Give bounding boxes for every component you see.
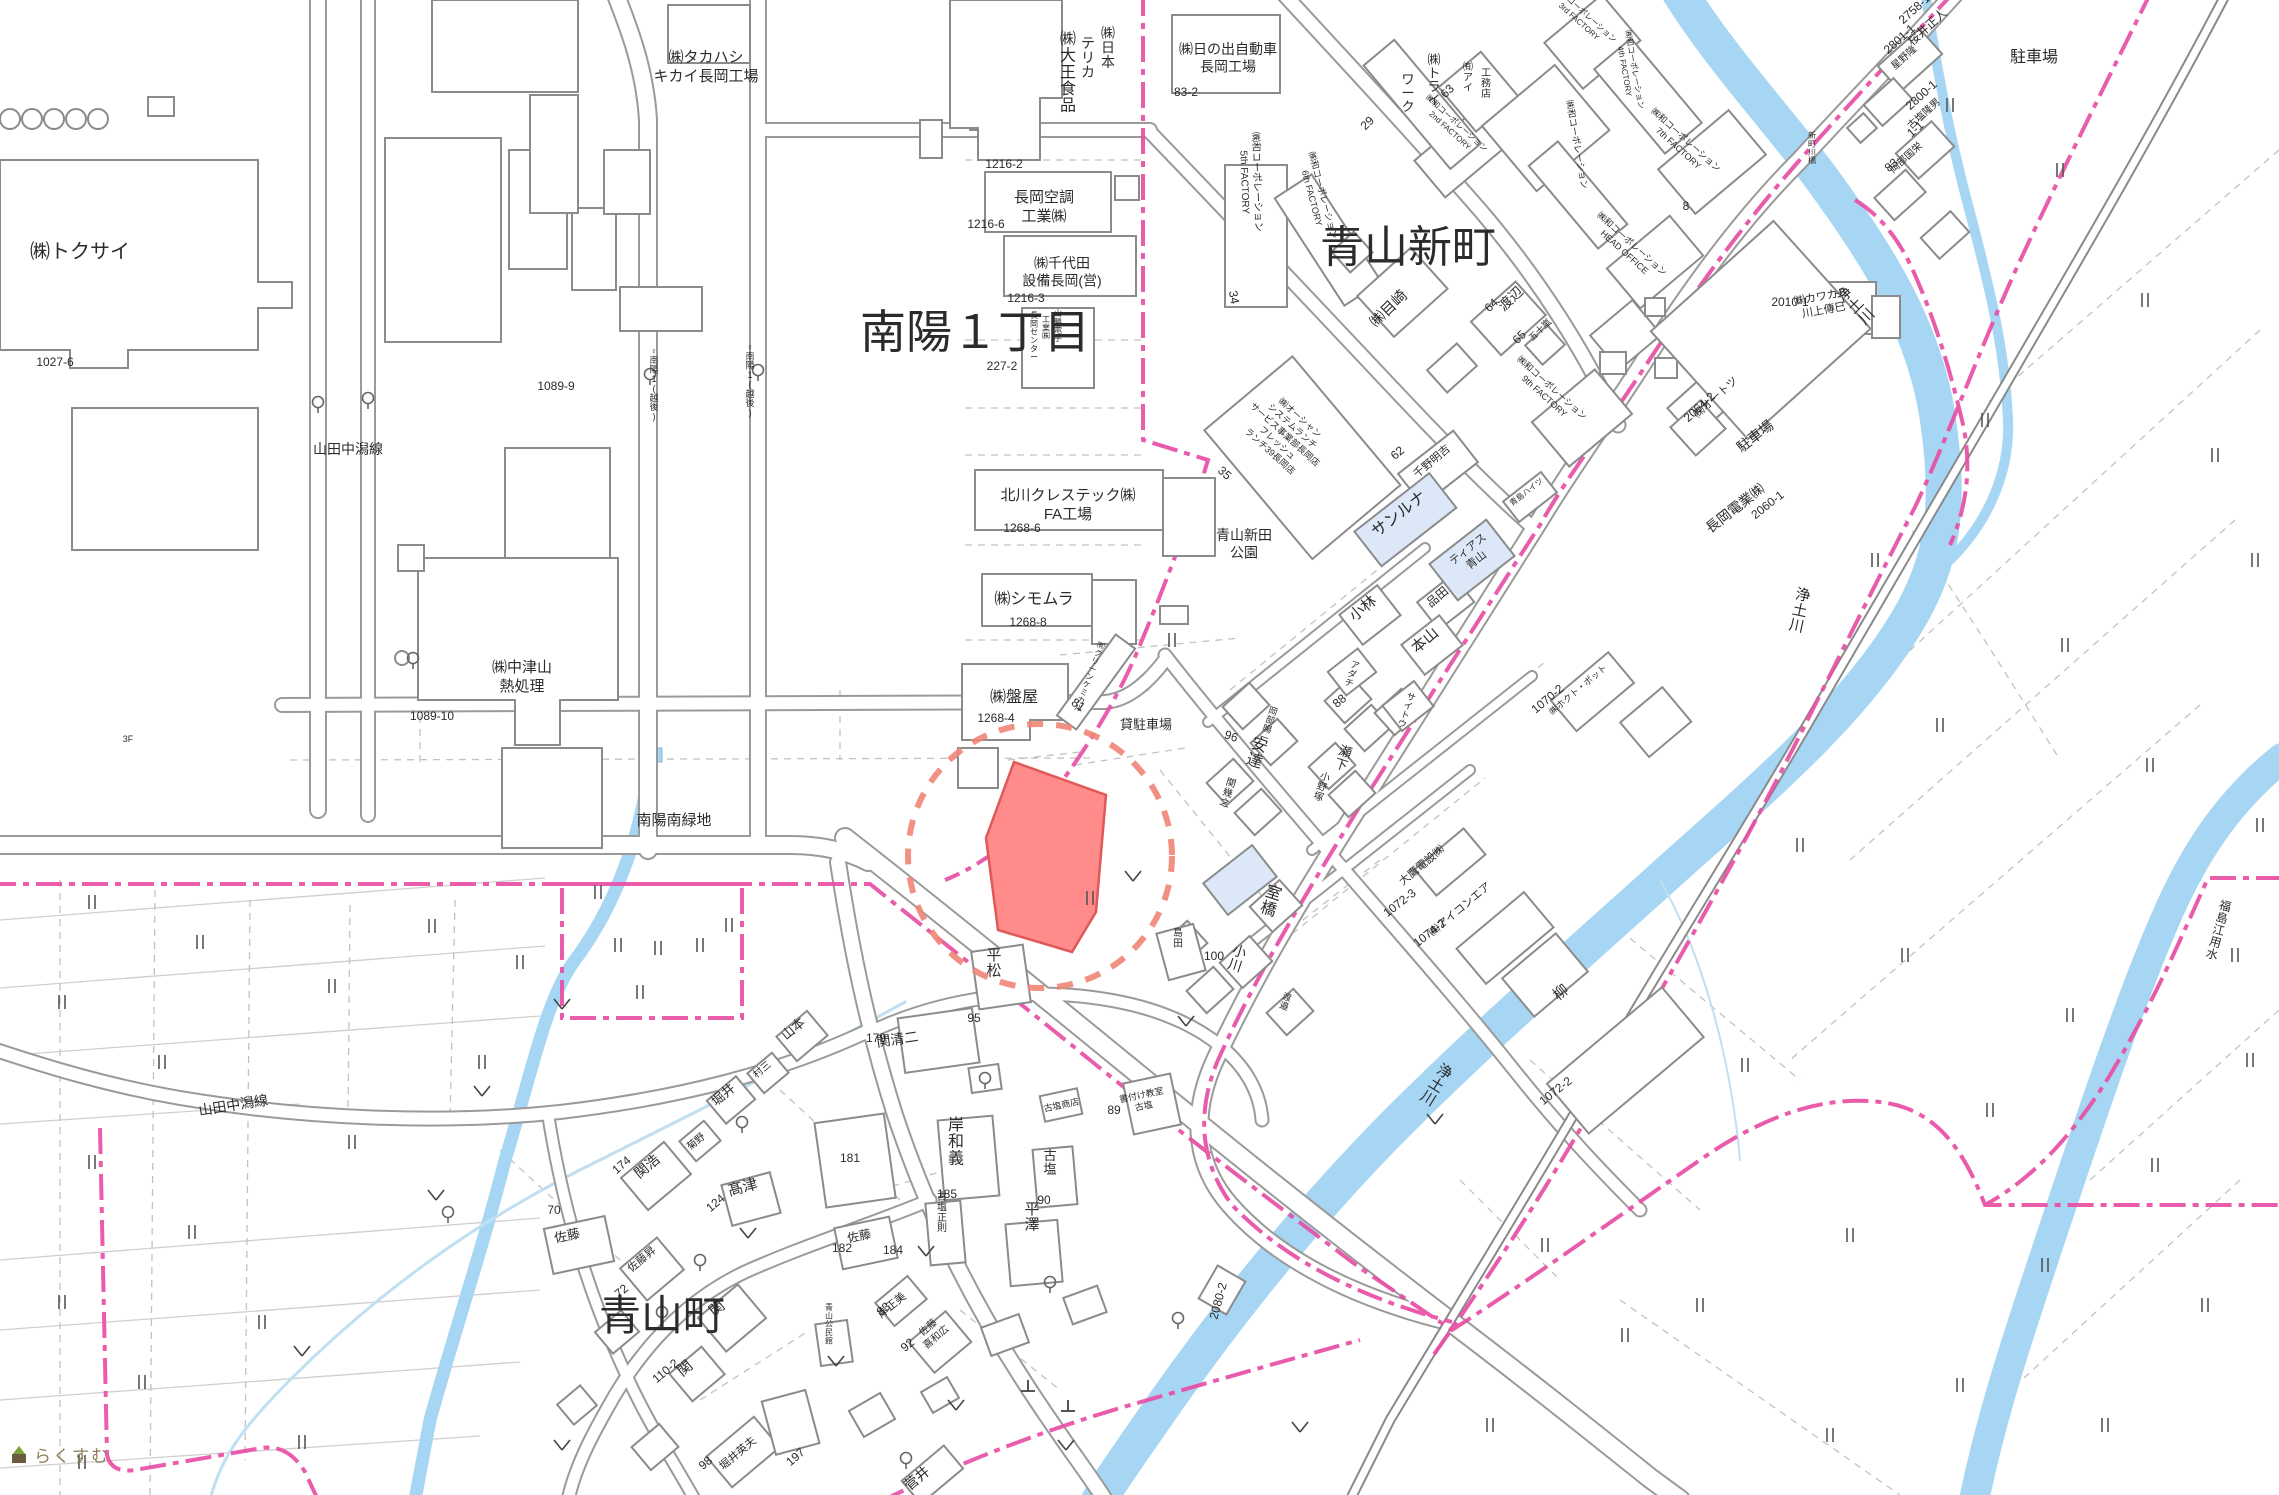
paddy-field-icon [299,1435,305,1449]
map-label: 3F [123,734,134,744]
field-check-icon [554,1440,570,1450]
parcel-number-label: 62 [1388,443,1407,463]
watermark: らくすむ [10,1442,110,1467]
map-label: 新町川橋 [1808,130,1816,165]
map-label: ㈱タカハシキカイ長岡工場 [653,49,758,85]
paddy-field-icon [637,985,643,999]
bus-stop-icon [901,1453,912,1470]
map-label: 工業㈱ [1042,315,1050,341]
map-label: ㈲アイ [1463,61,1473,94]
paddy-field-icon [259,1315,265,1329]
canal-fukushimae [1972,758,2279,1495]
map-label: 山田中潟線 [313,441,383,457]
paddy-field-icon [349,1135,355,1149]
paddy-field-icon [1742,1058,1748,1072]
field-strip-lines [0,878,545,1468]
paddy-field-icon [2247,1053,2253,1067]
district-label: 青山町 [599,1292,725,1339]
paddy-field-icon [697,938,703,952]
map-label: ㈱日本 [1101,25,1115,70]
parcel-number-label: 100 [1204,949,1224,963]
parcel-number-label: 95 [967,1011,981,1025]
map-label: 島田 [1173,926,1183,949]
paddy-field-icon [2062,638,2068,652]
paddy-field-icon [89,1155,95,1169]
map-label: ㈱盤屋 [990,688,1038,706]
bus-stop-icon [737,1117,748,1134]
paddy-field-icon [159,1055,165,1069]
survey-post-icon [1061,1400,1075,1411]
field-check-icon [1292,1422,1308,1432]
paddy-field-icon [2212,448,2218,462]
paddy-field-icon [2142,293,2148,307]
watermark-text: らくすむ [34,1442,110,1467]
building-tokusai[interactable] [0,160,292,368]
parcel-number-label: 1216-6 [967,217,1005,231]
parcel-number-label: 8 [1683,199,1690,213]
field-check-icon [474,1086,490,1096]
map-label: ㈱シモムラ [994,590,1073,608]
map-label: 山勝電子 [1054,308,1062,343]
paddy-field-icon [2147,758,2153,772]
building-takahashi[interactable] [432,0,578,92]
paddy-field-icon [726,918,732,932]
parcel-number-label: 1074-2 [1411,916,1449,950]
paddy-field-icon [1827,1428,1833,1442]
paddy-field-icon [2152,1158,2158,1172]
rakusumu-logo-icon [10,1446,28,1464]
parcel-number-label: 179 [866,1031,886,1045]
map-label: ㈱大王食品 [1060,30,1076,115]
field-check-icon [428,1190,444,1200]
bus-stop-icon [443,1207,454,1224]
paddy-field-icon [1987,1103,1993,1117]
paddy-field-icon [89,895,95,909]
paddy-field-icon [1872,553,1878,567]
parcel-number-label: 181 [840,1151,860,1165]
highlighted-red-parcel[interactable] [986,762,1106,952]
paddy-field-icon [2067,1008,2073,1022]
paddy-field-icon [479,1055,485,1069]
bus-stop-icon [1173,1313,1184,1330]
parcel-number-label: 89 [1107,1103,1121,1117]
map-label: 駐車場 [2010,48,2058,66]
parcel-number-label: 1027-6 [36,355,74,369]
paddy-field-icon [429,919,435,933]
parcel-number-label: 34 [1226,290,1242,306]
field-check-icon [740,1228,756,1238]
map-label: 南陽南緑地 [636,812,711,829]
map-label: テリカ [1081,35,1095,80]
paddy-field-icon [2232,948,2238,962]
field-check-icon [1125,871,1141,881]
parcel-number-label: 185 [937,1187,957,1201]
paddy-field-icon [197,935,203,949]
map-label: ㈱中津山熱処理 [492,659,552,695]
map-label: ワーク [1401,72,1414,114]
parcel-number-label: 70 [547,1203,561,1217]
paddy-field-icon [1937,718,1943,732]
map-label: 青山新田公園 [1216,527,1272,561]
parcel-number-label: 83-2 [1174,85,1198,99]
paddy-field-icon [1697,1298,1703,1312]
parcel-number-label: 1268-8 [1009,615,1047,629]
paddy-field-icon [329,979,335,993]
bus-stop-icon [695,1255,706,1272]
paddy-field-icon [2252,553,2258,567]
paddy-field-icon [2202,1298,2208,1312]
map-label: 長岡センター [1030,311,1038,362]
paddy-field-icon [189,1225,195,1239]
map-label: 貸駐車場 [1120,717,1172,732]
parcel-number-label: 1268-6 [1003,521,1041,535]
parcel-number-label: 1216-3 [1007,291,1045,305]
map-label: 工務店 [1481,68,1491,100]
map-label: 岸和義 [948,1116,964,1167]
parcel-number-label: 1072-3 [1381,886,1419,920]
field-check-icon [294,1346,310,1356]
map-label: 平松 [986,947,1001,980]
map-label: 長岡空調工業㈱ [1014,189,1074,225]
map-label: ㈱トライ [1427,52,1440,108]
map-label: 福島江用水 [2205,897,2233,963]
map-label: ㈱千代田設備長岡(営) [1022,255,1101,289]
map-canvas: 南陽１丁目青山新町青山町㈱トクサイ㈱タカハシキカイ長岡工場㈱日本テリカ㈱大王食品… [0,0,2279,1495]
paddy-field-icon [1957,1378,1963,1392]
district-label: 青山新町 [1320,223,1496,272]
parcel-number-label: 90 [1037,1193,1051,1207]
paddy-field-icon [615,938,621,952]
paddy-field-icon [1622,1328,1628,1342]
parcel-number-label: 1089-10 [410,709,454,723]
map-label: 青山公民館 [825,1302,833,1345]
parcel-number-label: 2010-1 [1771,295,1809,309]
parcel-number-label: 1216-2 [985,157,1023,171]
paddy-field-icon [2102,1418,2108,1432]
bus-stop-icon [408,653,419,670]
parcel-number-label: 1268-4 [977,711,1015,725]
parcel-number-label: 227-2 [987,359,1018,373]
parcel-number-label: 184 [883,1243,903,1257]
paddy-field-icon [139,1375,145,1389]
paddy-field-icon [1487,1418,1493,1432]
paddy-field-icon [1797,838,1803,852]
paddy-field-icon [2257,818,2263,832]
parcel-number-label: 29 [1358,113,1378,133]
highlight-group [908,724,1172,988]
paddy-field-icon [1542,1238,1548,1252]
paddy-field-icon [655,941,661,955]
parcel-number-label: 1089-9 [537,379,575,393]
paddy-field-icon [517,955,523,969]
parcel-number-label: 182 [832,1241,852,1255]
map-label: 浄土川 [1787,586,1812,636]
map-label: 古塩 [1043,1148,1056,1177]
paddy-field-icon [1902,948,1908,962]
map-label: ㈱トクサイ [30,240,130,263]
paddy-field-icon [1847,1228,1853,1242]
parcel-number-label: 35 [1215,463,1235,483]
paddy-field-icon [595,885,601,899]
